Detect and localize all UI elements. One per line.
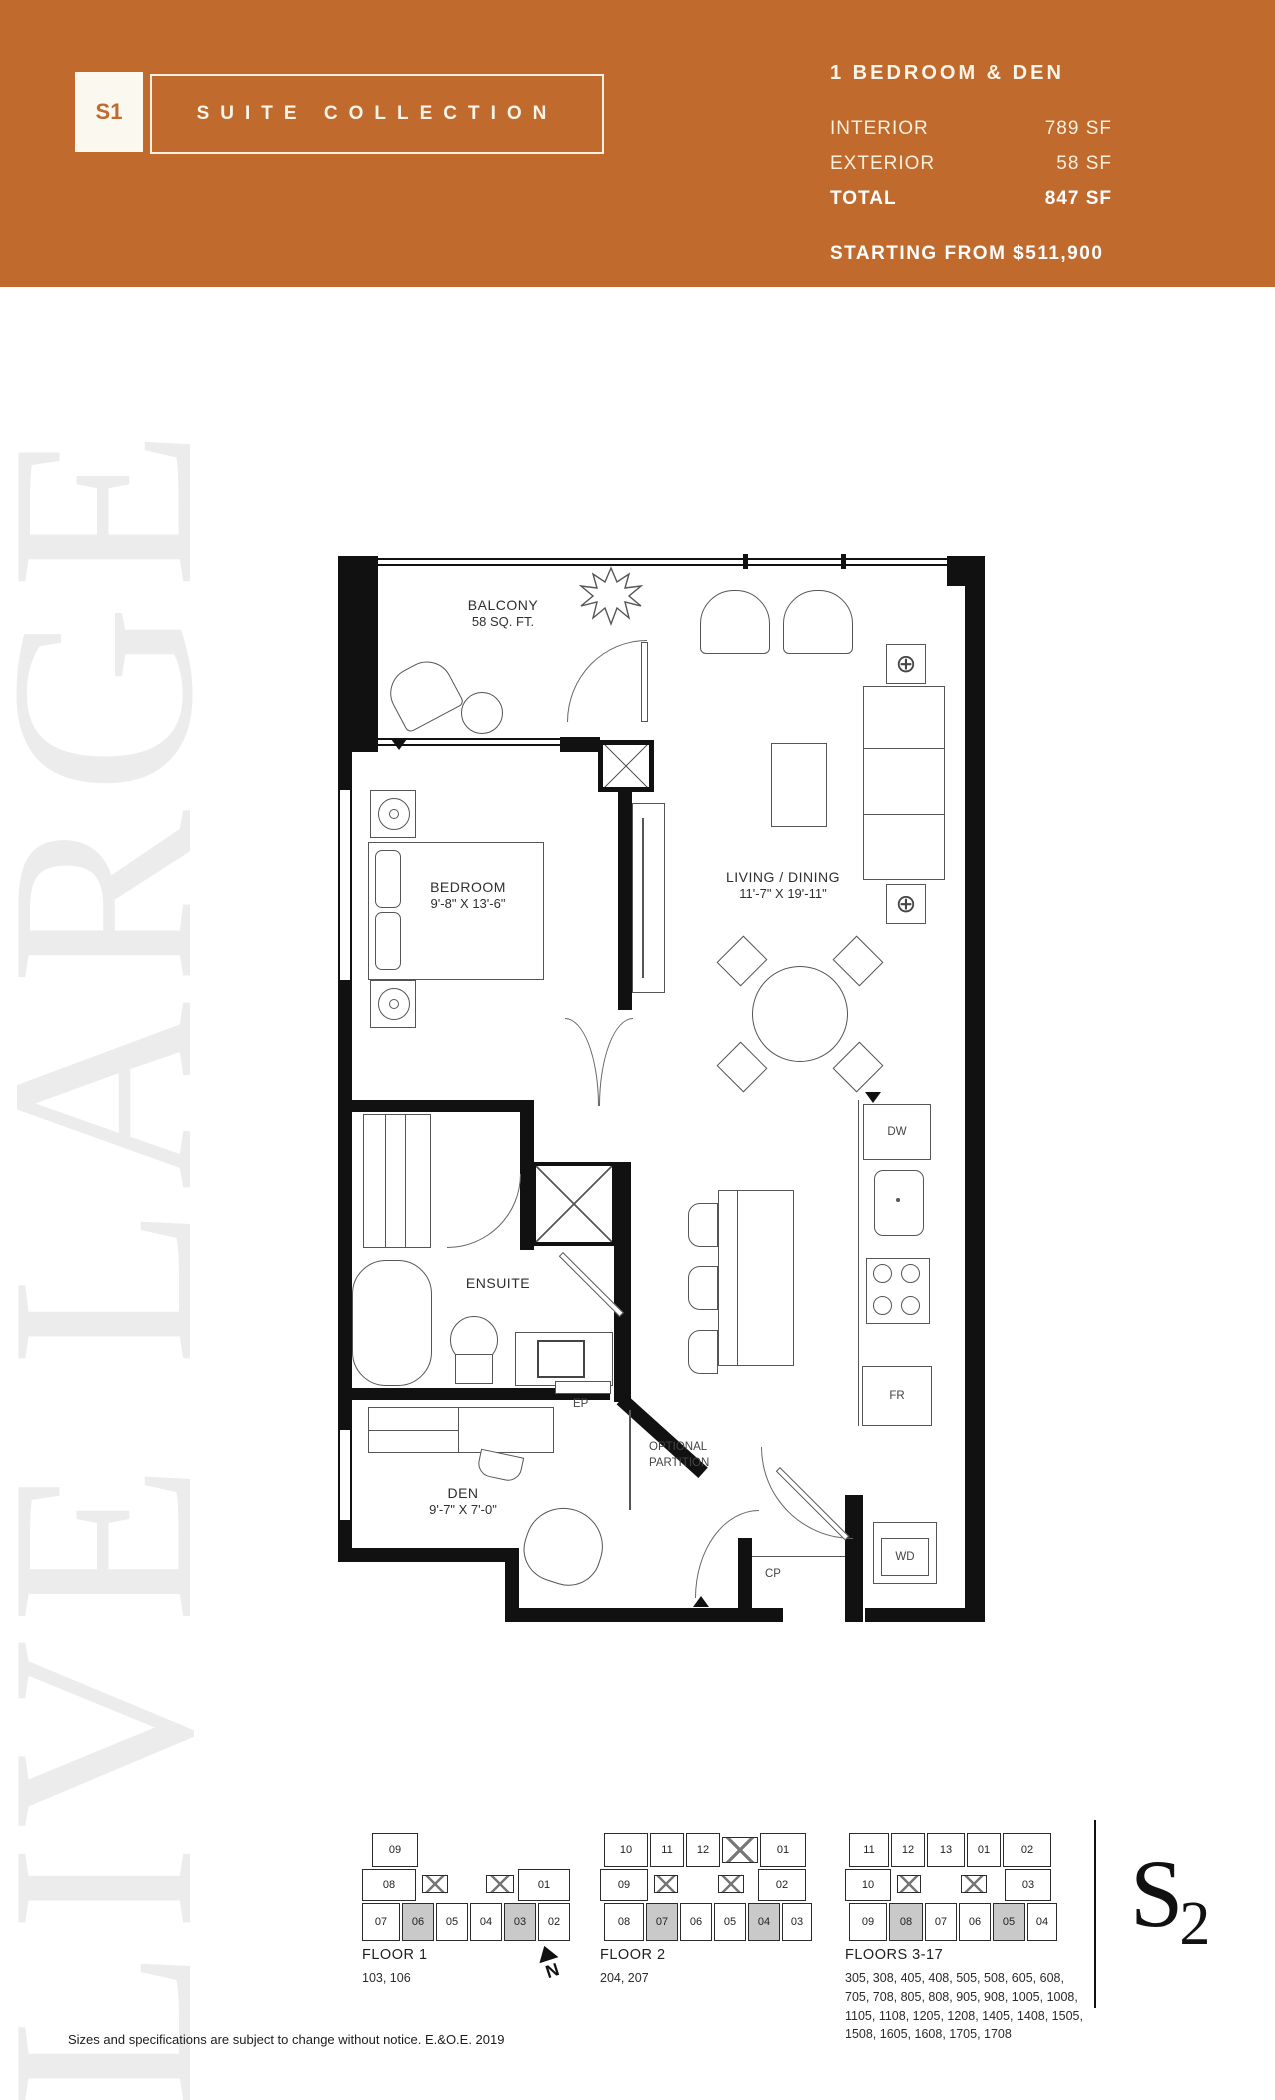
dining-chair — [717, 936, 768, 987]
room-name: ENSUITE — [433, 1274, 563, 1292]
burner — [873, 1264, 892, 1283]
unit-cell-highlighted: 03 — [504, 1903, 536, 1941]
balcony-chair — [381, 652, 465, 733]
suite-code-badge: S1 — [75, 72, 143, 152]
closet-rod — [385, 1115, 386, 1247]
keyplan-floor-1: 09 08 01 07 06 05 04 03 02 FLOOR 1 103, … — [358, 1833, 573, 1941]
unit-cell: 12 — [686, 1833, 720, 1867]
unit-cell: 08 — [362, 1869, 416, 1901]
vanity-sink — [537, 1340, 585, 1378]
area-stats: INTERIOR 789 SF EXTERIOR 58 SF TOTAL 847… — [830, 118, 1112, 223]
unit-cell: 05 — [714, 1903, 746, 1941]
room-name: DEN — [378, 1484, 548, 1502]
unit-cell: 09 — [600, 1869, 648, 1901]
stat-row-interior: INTERIOR 789 SF — [830, 118, 1112, 140]
kitchen-island — [718, 1190, 794, 1366]
fridge-label: FR — [889, 1390, 904, 1402]
bedroom-window — [338, 790, 352, 980]
keyplan-units: 204, 207 — [600, 1969, 649, 1988]
island-line — [737, 1191, 738, 1365]
keyplan-floors-3-17: 11 12 13 01 02 10 03 09 08 07 06 05 04 F… — [845, 1833, 1057, 1941]
burner — [901, 1264, 920, 1283]
media-console — [632, 803, 665, 993]
header-banner: S1 SUITE COLLECTION 1 BEDROOM & DEN INTE… — [0, 0, 1275, 287]
bathtub — [352, 1260, 432, 1386]
floorplan-sheet: LIVE LARGE S1 SUITE COLLECTION 1 BEDROOM… — [0, 0, 1275, 2100]
lamp-icon — [378, 798, 410, 830]
wall — [338, 556, 378, 738]
wd-label: WD — [895, 1551, 914, 1563]
amenity-icon — [722, 1837, 758, 1863]
unit-cell: 13 — [927, 1833, 965, 1867]
electrical-panel — [555, 1381, 611, 1394]
elevator-icon — [654, 1875, 678, 1893]
dining-table — [752, 966, 848, 1062]
armchair — [700, 590, 770, 654]
stat-value: 789 SF — [1045, 118, 1112, 140]
keyplan-title: FLOOR 2 — [600, 1947, 666, 1963]
window-mullion — [841, 554, 846, 569]
stat-value: 847 SF — [1045, 188, 1112, 210]
sofa — [863, 686, 945, 880]
unit-cell: 12 — [891, 1833, 925, 1867]
elevator-icon — [422, 1875, 448, 1893]
disclaimer-text: Sizes and specifications are subject to … — [68, 2032, 504, 2047]
unit-cell: 09 — [372, 1833, 418, 1867]
dining-chair — [717, 1042, 768, 1093]
north-arrow-icon: N — [535, 1943, 565, 1984]
keyplan-units: 103, 106 — [362, 1969, 411, 1988]
unit-cell: 09 — [849, 1903, 887, 1941]
room-name: LIVING / DINING — [703, 868, 863, 886]
unit-cell: 08 — [604, 1903, 644, 1941]
unit-cell: 04 — [1027, 1903, 1057, 1941]
unit-cell: 11 — [849, 1833, 889, 1867]
unit-cell-highlighted: 04 — [748, 1903, 780, 1941]
wall — [738, 1538, 752, 1622]
stool — [688, 1266, 718, 1310]
coffee-table — [771, 743, 827, 827]
stat-label: TOTAL — [830, 188, 897, 210]
stat-row-exterior: EXTERIOR 58 SF — [830, 153, 1112, 175]
kitchen-marker-icon — [865, 1092, 881, 1103]
ensuite-door-arc — [447, 1174, 521, 1248]
lamp-icon — [378, 988, 410, 1020]
closet-rod — [405, 1115, 406, 1247]
sofa-cushion-line — [864, 814, 944, 815]
elevator-icon — [718, 1875, 744, 1893]
keyplan-title: FLOOR 1 — [362, 1947, 428, 1963]
room-dims: 9'-7" X 7'-0" — [378, 1502, 548, 1519]
unit-cell: 11 — [650, 1833, 684, 1867]
wall — [965, 556, 985, 1622]
unit-cell: 07 — [362, 1903, 400, 1941]
desk-line — [458, 1408, 459, 1452]
room-name: BEDROOM — [388, 878, 548, 896]
room-name: BALCONY — [423, 596, 583, 614]
balcony-label: BALCONY 58 SQ. FT. — [423, 596, 583, 631]
lamp-symbol-icon: ⊕ — [896, 649, 917, 679]
divider — [1094, 1820, 1096, 2008]
burner — [873, 1296, 892, 1315]
stat-label: INTERIOR — [830, 118, 929, 140]
keyplan-title: FLOORS 3-17 — [845, 1947, 943, 1963]
lamp-symbol-icon: ⊕ — [896, 889, 917, 919]
unit-cell: 05 — [436, 1903, 468, 1941]
collection-title: SUITE COLLECTION — [150, 74, 604, 154]
live-large-watermark: LIVE LARGE — [0, 413, 253, 2100]
unit-cell: 02 — [538, 1903, 570, 1941]
balcony-table — [461, 692, 503, 734]
door-marker-icon — [391, 739, 407, 750]
unit-cell: 07 — [925, 1903, 957, 1941]
room-dims: 58 SQ. FT. — [423, 614, 583, 631]
elevator-icon — [961, 1875, 987, 1893]
living-window — [650, 558, 950, 566]
stool — [688, 1330, 718, 1374]
stat-value: 58 SF — [1056, 153, 1112, 175]
keyplan-floor-2: 10 11 12 01 09 02 08 07 06 05 04 03 FLOO… — [600, 1833, 812, 1941]
washer-dryer-inner: WD — [881, 1538, 929, 1576]
bedroom-label: BEDROOM 9'-8" X 13'-6" — [388, 878, 548, 913]
logo-letter: S — [1130, 1840, 1183, 1947]
plant-icon — [579, 566, 643, 626]
closet — [363, 1114, 431, 1248]
unit-cell: 06 — [959, 1903, 991, 1941]
unit-cell: 01 — [967, 1833, 1001, 1867]
elevator-icon — [897, 1875, 921, 1893]
optional-partition-note: OPTIONAL PARTITION — [649, 1440, 709, 1471]
note-line: PARTITION — [649, 1456, 709, 1472]
sink-drain — [896, 1198, 900, 1202]
unit-cell: 10 — [845, 1869, 891, 1901]
desk-line — [369, 1430, 458, 1431]
starting-price: STARTING FROM $511,900 — [830, 243, 1103, 265]
unit-cell: 10 — [604, 1833, 648, 1867]
unit-floorplan: BEDROOM 9'-8" X 13'-6" ⊕ ⊕ LIVING / DINI… — [333, 548, 988, 1630]
ensuite-label: ENSUITE — [433, 1274, 563, 1292]
pillow — [375, 912, 401, 970]
shower — [532, 1162, 616, 1246]
note-line: OPTIONAL — [649, 1440, 709, 1456]
wall — [947, 556, 985, 586]
logo-number: 2 — [1179, 1890, 1210, 1958]
wall — [338, 1548, 519, 1562]
unit-cell: 02 — [758, 1869, 806, 1901]
room-dims: 11'-7" X 19'-11" — [703, 886, 863, 903]
wall — [338, 1100, 520, 1112]
balcony-door-leaf — [641, 642, 648, 722]
burner — [901, 1296, 920, 1315]
sofa-cushion-line — [864, 748, 944, 749]
closet-shelf-line — [752, 1556, 845, 1557]
unit-cell: 02 — [1003, 1833, 1051, 1867]
unit-cell-highlighted: 06 — [402, 1903, 434, 1941]
kitchen-sink — [874, 1170, 924, 1236]
entry-marker-icon — [693, 1596, 709, 1607]
wall — [338, 738, 378, 752]
north-label: N — [543, 1959, 562, 1983]
shaft — [598, 740, 654, 792]
end-table: ⊕ — [886, 884, 926, 924]
stat-label: EXTERIOR — [830, 153, 935, 175]
stool — [688, 1203, 718, 1247]
counter-edge — [858, 1100, 859, 1426]
unit-cell-highlighted: 07 — [646, 1903, 678, 1941]
door-arc — [599, 1018, 633, 1106]
balcony-door-arc — [567, 640, 647, 722]
balcony-railing — [378, 558, 650, 566]
toilet-tank — [455, 1354, 493, 1384]
unit-cell: 01 — [518, 1869, 570, 1901]
desk-chair — [476, 1449, 524, 1484]
armchair — [783, 590, 853, 654]
unit-cell: 03 — [1005, 1869, 1051, 1901]
unit-cell: 04 — [470, 1903, 502, 1941]
optional-partition-line — [629, 1410, 631, 1510]
keyplan-units: 305, 308, 405, 408, 505, 508, 605, 608, … — [845, 1969, 1085, 2044]
den-window — [338, 1430, 352, 1520]
entry-door-arc — [761, 1447, 853, 1539]
unit-cell-highlighted: 08 — [889, 1903, 923, 1941]
unit-cell: 01 — [760, 1833, 806, 1867]
window-mullion — [743, 554, 748, 569]
unit-cell: 03 — [782, 1903, 812, 1941]
room-dims: 9'-8" X 13'-6" — [388, 896, 548, 913]
wall — [614, 1162, 631, 1402]
dishwasher: DW — [863, 1104, 931, 1160]
plan-type-title: 1 BEDROOM & DEN — [830, 62, 1064, 85]
den-label: DEN 9'-7" X 7'-0" — [378, 1484, 548, 1519]
end-table: ⊕ — [886, 644, 926, 684]
dishwasher-label: DW — [887, 1126, 906, 1138]
dining-chair — [833, 936, 884, 987]
door-arc — [565, 1018, 599, 1106]
dining-chair — [833, 1042, 884, 1093]
wall — [560, 737, 600, 752]
tv — [642, 818, 644, 978]
stat-row-total: TOTAL 847 SF — [830, 188, 1112, 210]
elevator-icon — [486, 1875, 514, 1893]
wall — [618, 792, 632, 1010]
unit-cell-highlighted: 05 — [993, 1903, 1025, 1941]
ep-label: EP — [573, 1398, 588, 1410]
living-label: LIVING / DINING 11'-7" X 19'-11" — [703, 868, 863, 903]
fridge: FR — [862, 1366, 932, 1426]
s2-building-logo: S2 — [1130, 1838, 1214, 1949]
cp-label: CP — [765, 1568, 781, 1580]
unit-cell: 06 — [680, 1903, 712, 1941]
